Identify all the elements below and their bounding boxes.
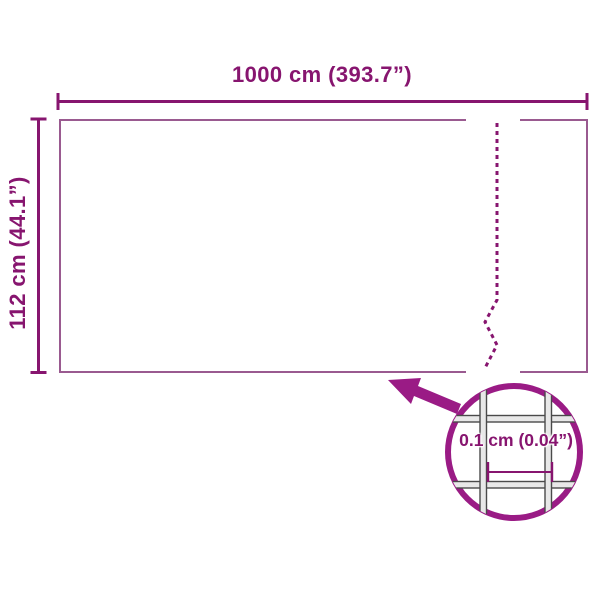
height-dimension-label: 112 cm (44.1”) — [6, 143, 32, 363]
height-dimension — [31, 119, 47, 373]
product-dimension-diagram: 1000 cm (393.7”) 112 cm (44.1”) 0.1 cm (… — [0, 0, 600, 600]
width-dimension — [58, 93, 587, 110]
break-dashed-line — [485, 123, 497, 368]
mesh-wire-vertical-right — [545, 384, 552, 521]
width-dimension-label: 1000 cm (393.7”) — [57, 63, 587, 87]
zoom-callout-circle — [446, 384, 583, 521]
zoom-callout-arrow — [388, 378, 461, 414]
magnifier-circle — [448, 386, 580, 518]
mesh-wire-horizontal-top — [446, 416, 583, 423]
diagram-shapes — [0, 0, 600, 600]
mesh-wire-vertical-left — [480, 384, 487, 521]
panel-outline — [60, 120, 587, 372]
mesh-wire-horizontal-bottom — [446, 482, 583, 489]
mesh-dimension-label: 0.1 cm (0.04”) — [426, 431, 600, 450]
